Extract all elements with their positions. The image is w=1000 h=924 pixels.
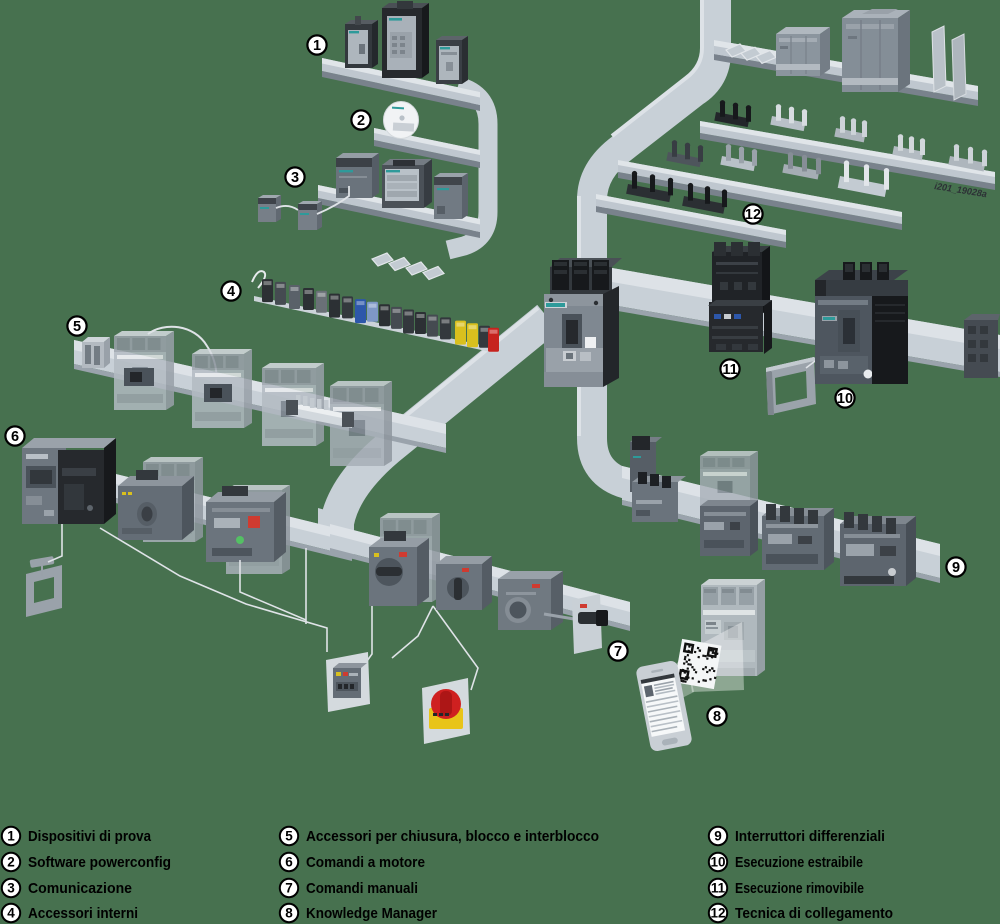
svg-text:Tecnica di collegamento: Tecnica di collegamento bbox=[735, 905, 893, 922]
svg-text:4: 4 bbox=[227, 284, 235, 300]
svg-text:7: 7 bbox=[614, 644, 622, 660]
svg-text:11: 11 bbox=[722, 362, 737, 378]
svg-text:Accessori interni: Accessori interni bbox=[28, 905, 138, 922]
svg-text:8: 8 bbox=[713, 709, 721, 725]
svg-text:Comunicazione: Comunicazione bbox=[28, 880, 132, 897]
svg-text:1: 1 bbox=[313, 38, 321, 54]
svg-text:9: 9 bbox=[714, 829, 722, 844]
svg-text:Esecuzione estraibile: Esecuzione estraibile bbox=[735, 854, 863, 871]
svg-text:1: 1 bbox=[7, 829, 15, 844]
svg-text:6: 6 bbox=[11, 429, 19, 445]
svg-text:2: 2 bbox=[7, 855, 15, 870]
svg-text:Comandi manuali: Comandi manuali bbox=[306, 880, 418, 897]
svg-text:Interruttori differenziali: Interruttori differenziali bbox=[735, 828, 885, 845]
svg-text:5: 5 bbox=[73, 319, 81, 335]
svg-text:5: 5 bbox=[285, 829, 293, 844]
svg-text:Knowledge Manager: Knowledge Manager bbox=[306, 905, 437, 922]
svg-text:9: 9 bbox=[952, 560, 960, 576]
svg-text:Accessori per chiusura, blocco: Accessori per chiusura, blocco e interbl… bbox=[306, 828, 599, 845]
svg-text:3: 3 bbox=[7, 881, 15, 896]
svg-text:12: 12 bbox=[745, 207, 761, 223]
svg-text:6: 6 bbox=[285, 855, 293, 870]
svg-text:8: 8 bbox=[285, 906, 293, 921]
svg-text:12: 12 bbox=[710, 906, 725, 921]
svg-text:Dispositivi di prova: Dispositivi di prova bbox=[28, 828, 152, 845]
svg-text:Comandi a motore: Comandi a motore bbox=[306, 854, 425, 871]
svg-text:Esecuzione rimovibile: Esecuzione rimovibile bbox=[735, 880, 864, 897]
svg-text:10: 10 bbox=[710, 855, 725, 870]
svg-text:10: 10 bbox=[837, 391, 853, 407]
svg-text:2: 2 bbox=[357, 113, 365, 129]
svg-text:11: 11 bbox=[711, 881, 726, 896]
svg-text:3: 3 bbox=[291, 170, 299, 186]
svg-text:Software powerconfig: Software powerconfig bbox=[28, 854, 171, 871]
svg-text:7: 7 bbox=[285, 881, 293, 896]
svg-text:4: 4 bbox=[7, 906, 15, 921]
